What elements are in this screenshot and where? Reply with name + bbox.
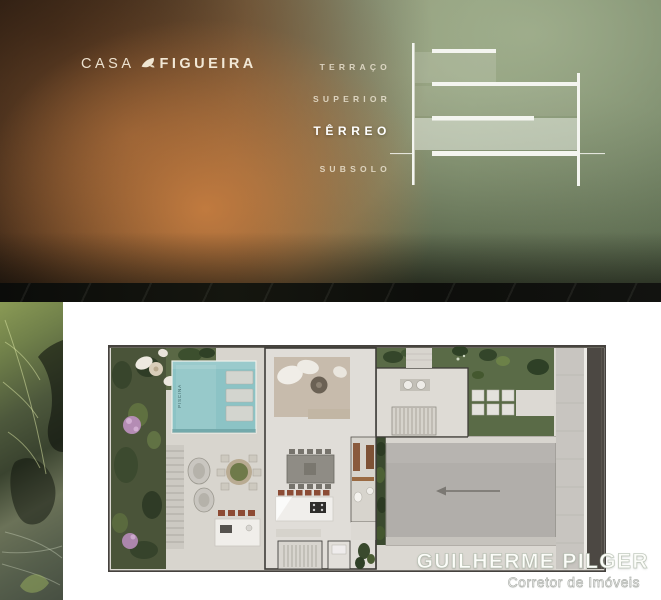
slab-terreo — [432, 116, 534, 121]
level-item-subsolo[interactable]: SUBSOLO — [320, 164, 391, 174]
dining-table — [287, 449, 334, 489]
pool-label: PISCINA — [177, 384, 182, 408]
attribution: GUILHERME PILGER Corretor de Imóveis — [417, 551, 649, 589]
plan-pool: PISCINA — [172, 361, 256, 433]
divider-band — [0, 283, 661, 302]
plan-garage — [375, 437, 556, 545]
level-item-terreo-active[interactable]: TÊRREO — [313, 124, 391, 138]
hero-section: CASA FIGUEIRA TERRAÇO SUPERIOR TÊRREO SU… — [0, 0, 661, 283]
volume-terreo-highlight — [415, 118, 580, 150]
guide-line-left — [390, 153, 413, 154]
volume-superior — [415, 86, 580, 116]
slab-subsolo — [432, 151, 580, 156]
slab-superior — [432, 82, 579, 86]
page: CASA FIGUEIRA TERRAÇO SUPERIOR TÊRREO SU… — [0, 0, 661, 600]
brand-casa: CASA — [81, 56, 135, 72]
stairs — [392, 407, 436, 435]
fig-leaf-icon — [140, 59, 155, 70]
floor-plan-image: PISCINA — [108, 345, 606, 572]
plan-bottom-rooms — [278, 541, 350, 569]
agent-role: Corretor de Imóveis — [417, 575, 649, 589]
round-dining-table — [217, 455, 261, 490]
plan-garden-left — [111, 348, 166, 569]
slab-terraco — [432, 49, 496, 53]
living-room — [274, 357, 350, 419]
brand-title: CASA FIGUEIRA — [81, 56, 257, 72]
building-section-diagram — [385, 35, 615, 195]
diagram-right-post — [577, 73, 580, 186]
agent-name: GUILHERME PILGER — [417, 551, 649, 572]
plan-garden-steps — [166, 445, 184, 549]
plan-street — [556, 348, 604, 569]
brand-figueira: FIGUEIRA — [160, 56, 257, 72]
floorplan-section: PISCINA — [0, 302, 661, 600]
guide-line-right — [580, 153, 605, 154]
level-item-terraco[interactable]: TERRAÇO — [320, 62, 391, 72]
volume-terraco — [415, 52, 496, 83]
diagram-left-post — [412, 43, 415, 185]
level-item-superior[interactable]: SUPERIOR — [313, 94, 391, 104]
fig-leaf-photo — [0, 302, 63, 600]
